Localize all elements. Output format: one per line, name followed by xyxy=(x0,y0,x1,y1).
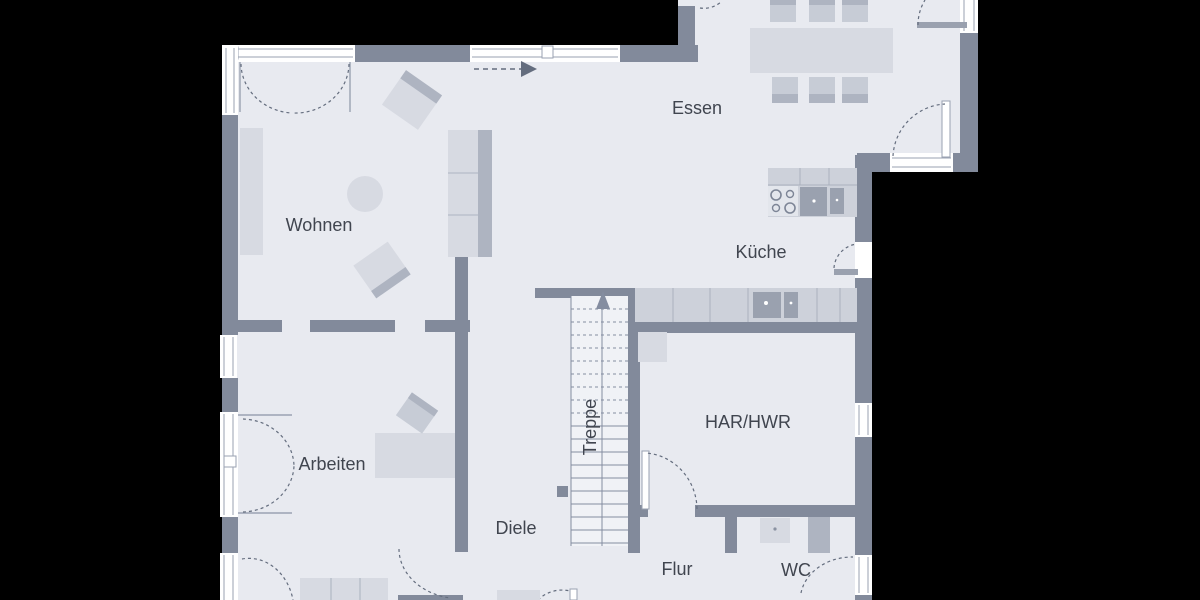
dining-chair xyxy=(842,77,868,103)
dining-chair xyxy=(772,77,798,103)
room-label-kueche: Küche xyxy=(735,242,786,262)
room-label-arbeiten: Arbeiten xyxy=(298,454,365,474)
floor-plan-page: Essen Wohnen Küche Arbeiten Treppe HAR/H… xyxy=(0,0,1200,600)
furniture-diele xyxy=(497,590,540,600)
stair-post xyxy=(557,486,568,497)
door-leaf xyxy=(834,269,858,275)
cabinet xyxy=(300,578,388,600)
window-mullion-marker xyxy=(542,46,553,58)
cabinet xyxy=(497,590,540,600)
door-leaf xyxy=(942,101,950,157)
dining-chair xyxy=(770,0,796,22)
dining-table xyxy=(750,28,893,73)
dining-chair xyxy=(842,0,868,22)
kitchen-counter xyxy=(635,288,857,322)
room-label-flur: Flur xyxy=(662,559,693,579)
desk xyxy=(375,433,455,478)
door-leaf xyxy=(642,451,649,509)
room-label-wohnen: Wohnen xyxy=(286,215,353,235)
room-label-treppe: Treppe xyxy=(580,399,600,455)
room-label-diele: Diele xyxy=(495,518,536,538)
round-table xyxy=(347,176,383,212)
door-leaf xyxy=(917,22,967,28)
room-label-har-hwr: HAR/HWR xyxy=(705,412,791,432)
sofa xyxy=(448,130,492,257)
dining-chair xyxy=(809,77,835,103)
furniture-har xyxy=(638,332,667,362)
sideboard xyxy=(240,128,263,255)
dining-chair xyxy=(809,0,835,22)
cupboard xyxy=(638,332,667,362)
door-leaf xyxy=(570,589,577,600)
toilet xyxy=(808,517,830,553)
floor-plan-svg: Essen Wohnen Küche Arbeiten Treppe HAR/H… xyxy=(0,0,1200,600)
room-label-wc: WC xyxy=(781,560,811,580)
room-label-essen: Essen xyxy=(672,98,722,118)
cut-door-leaf xyxy=(398,595,463,600)
dishwasher xyxy=(784,292,798,318)
sink xyxy=(753,292,781,318)
door-handle-marker xyxy=(224,456,236,467)
